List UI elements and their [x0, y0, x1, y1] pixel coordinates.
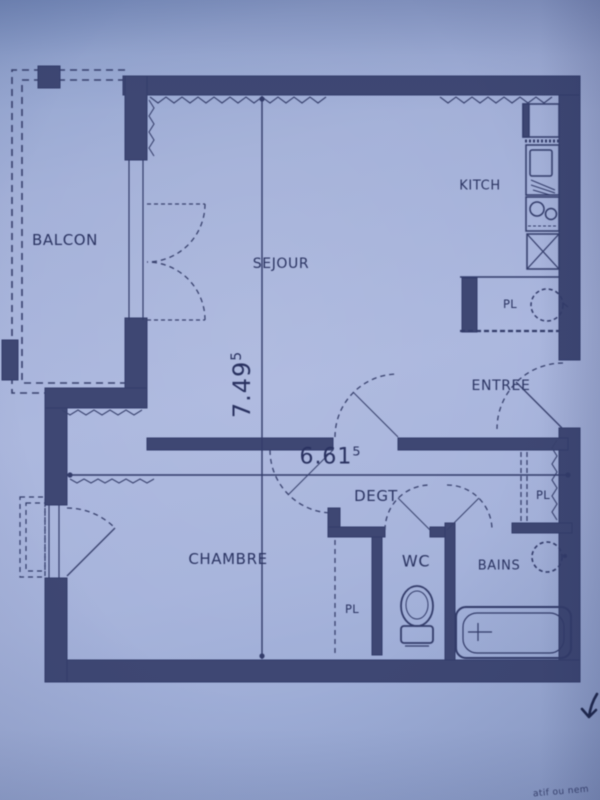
- wall-chambre-west-upper: [45, 408, 67, 505]
- wall-kitchen-pl-left: [462, 278, 477, 332]
- balcony-pillar-bottom: [2, 340, 18, 380]
- dimension-text-width: 6.615: [299, 444, 360, 469]
- wall-chambre-west-lower: [45, 578, 67, 682]
- french-door-arc-upper: [147, 204, 205, 262]
- room-label-balcon: BALCON: [32, 231, 98, 249]
- dimension-text-height: 7.495: [228, 352, 256, 418]
- wall-right-upper: [559, 95, 580, 360]
- toilet-tank: [401, 626, 433, 643]
- stove-burner-left: [530, 202, 544, 216]
- dimension-width-value: 6.61: [299, 445, 352, 470]
- room-label-wc: WC: [402, 552, 430, 571]
- room-label-degt: DEGT: [354, 487, 398, 505]
- room-label-kitch: KITCH: [459, 179, 500, 194]
- kitchen-cupboard-side: [523, 104, 529, 137]
- dim-dot-right: [565, 472, 570, 477]
- closet-label-pl-bains: PL: [536, 488, 550, 502]
- wall-mid-right: [398, 438, 568, 450]
- hatch-right-inner: [552, 440, 557, 520]
- degt-door-leaf: [353, 392, 398, 437]
- dim-dot-top: [259, 96, 264, 101]
- wc-door-leaf: [398, 498, 430, 530]
- wall-pl-wc-top: [328, 527, 385, 537]
- kitchen-sink-bowl: [530, 150, 552, 176]
- washbasin: [532, 542, 562, 572]
- hatch-west-corner: [149, 100, 154, 156]
- french-door-arc-lower: [147, 262, 205, 320]
- chambre-shutter-box-outer: [20, 497, 45, 577]
- wall-sejour-west-lower: [125, 318, 147, 398]
- room-label-chambre: CHAMBRE: [188, 550, 267, 568]
- floor-plan-photo: BALCON SEJOUR KITCH ENTREE DEGT CHAMBRE …: [0, 0, 600, 800]
- bathtub-tap: [468, 623, 492, 641]
- dimension-height-sup: 5: [229, 352, 245, 361]
- room-label-sejour: SEJOUR: [253, 256, 309, 272]
- closet-label-pl-chambre: PL: [345, 602, 359, 616]
- hatch-top-kitchen: [440, 97, 552, 103]
- dim-dot-bottom: [259, 653, 264, 658]
- plan-linework: [0, 0, 600, 800]
- doors: [67, 204, 563, 653]
- wall-sejour-west-upper: [125, 76, 147, 160]
- wall-bottom: [48, 660, 580, 682]
- dim-dot-left: [67, 472, 72, 477]
- closet-label-pl-kitchen: PL: [503, 297, 517, 311]
- room-label-bains: BAINS: [478, 559, 521, 574]
- hatch-top-sejour: [150, 97, 326, 103]
- toilet-bowl-inner: [406, 591, 428, 619]
- wall-right-lower: [559, 428, 580, 680]
- wall-step: [45, 388, 147, 408]
- chambre-window-leaf: [67, 528, 115, 576]
- chambre-window-arc: [67, 508, 115, 528]
- chambre-shutter-box-inner: [26, 503, 45, 571]
- wall-wc-east: [445, 523, 455, 660]
- wall-pl-closet-right: [372, 537, 382, 655]
- handwritten-mark: [582, 694, 597, 717]
- walls: [2, 66, 580, 682]
- dimension-width-sup: 5: [352, 444, 360, 459]
- bains-door-leaf: [447, 498, 479, 530]
- wall-bains-pl-bottom: [512, 523, 572, 533]
- washbasin-tap: [563, 554, 567, 558]
- kitchen-sink-unit: [526, 145, 559, 195]
- stove-burner-right: [546, 209, 557, 220]
- fridge-cross: [527, 234, 559, 269]
- balcony-pillar-top: [38, 66, 60, 88]
- water-heater: [531, 289, 563, 321]
- wall-top: [123, 76, 580, 95]
- hatch-step: [62, 410, 142, 415]
- kitchen-sink-drainer: [531, 180, 555, 195]
- hatch-chambre-north: [70, 479, 154, 483]
- room-label-entree: ENTREE: [472, 378, 531, 394]
- floor-plan-drawing: BALCON SEJOUR KITCH ENTREE DEGT CHAMBRE …: [0, 0, 600, 800]
- dimension-height-value: 7.49: [228, 361, 256, 418]
